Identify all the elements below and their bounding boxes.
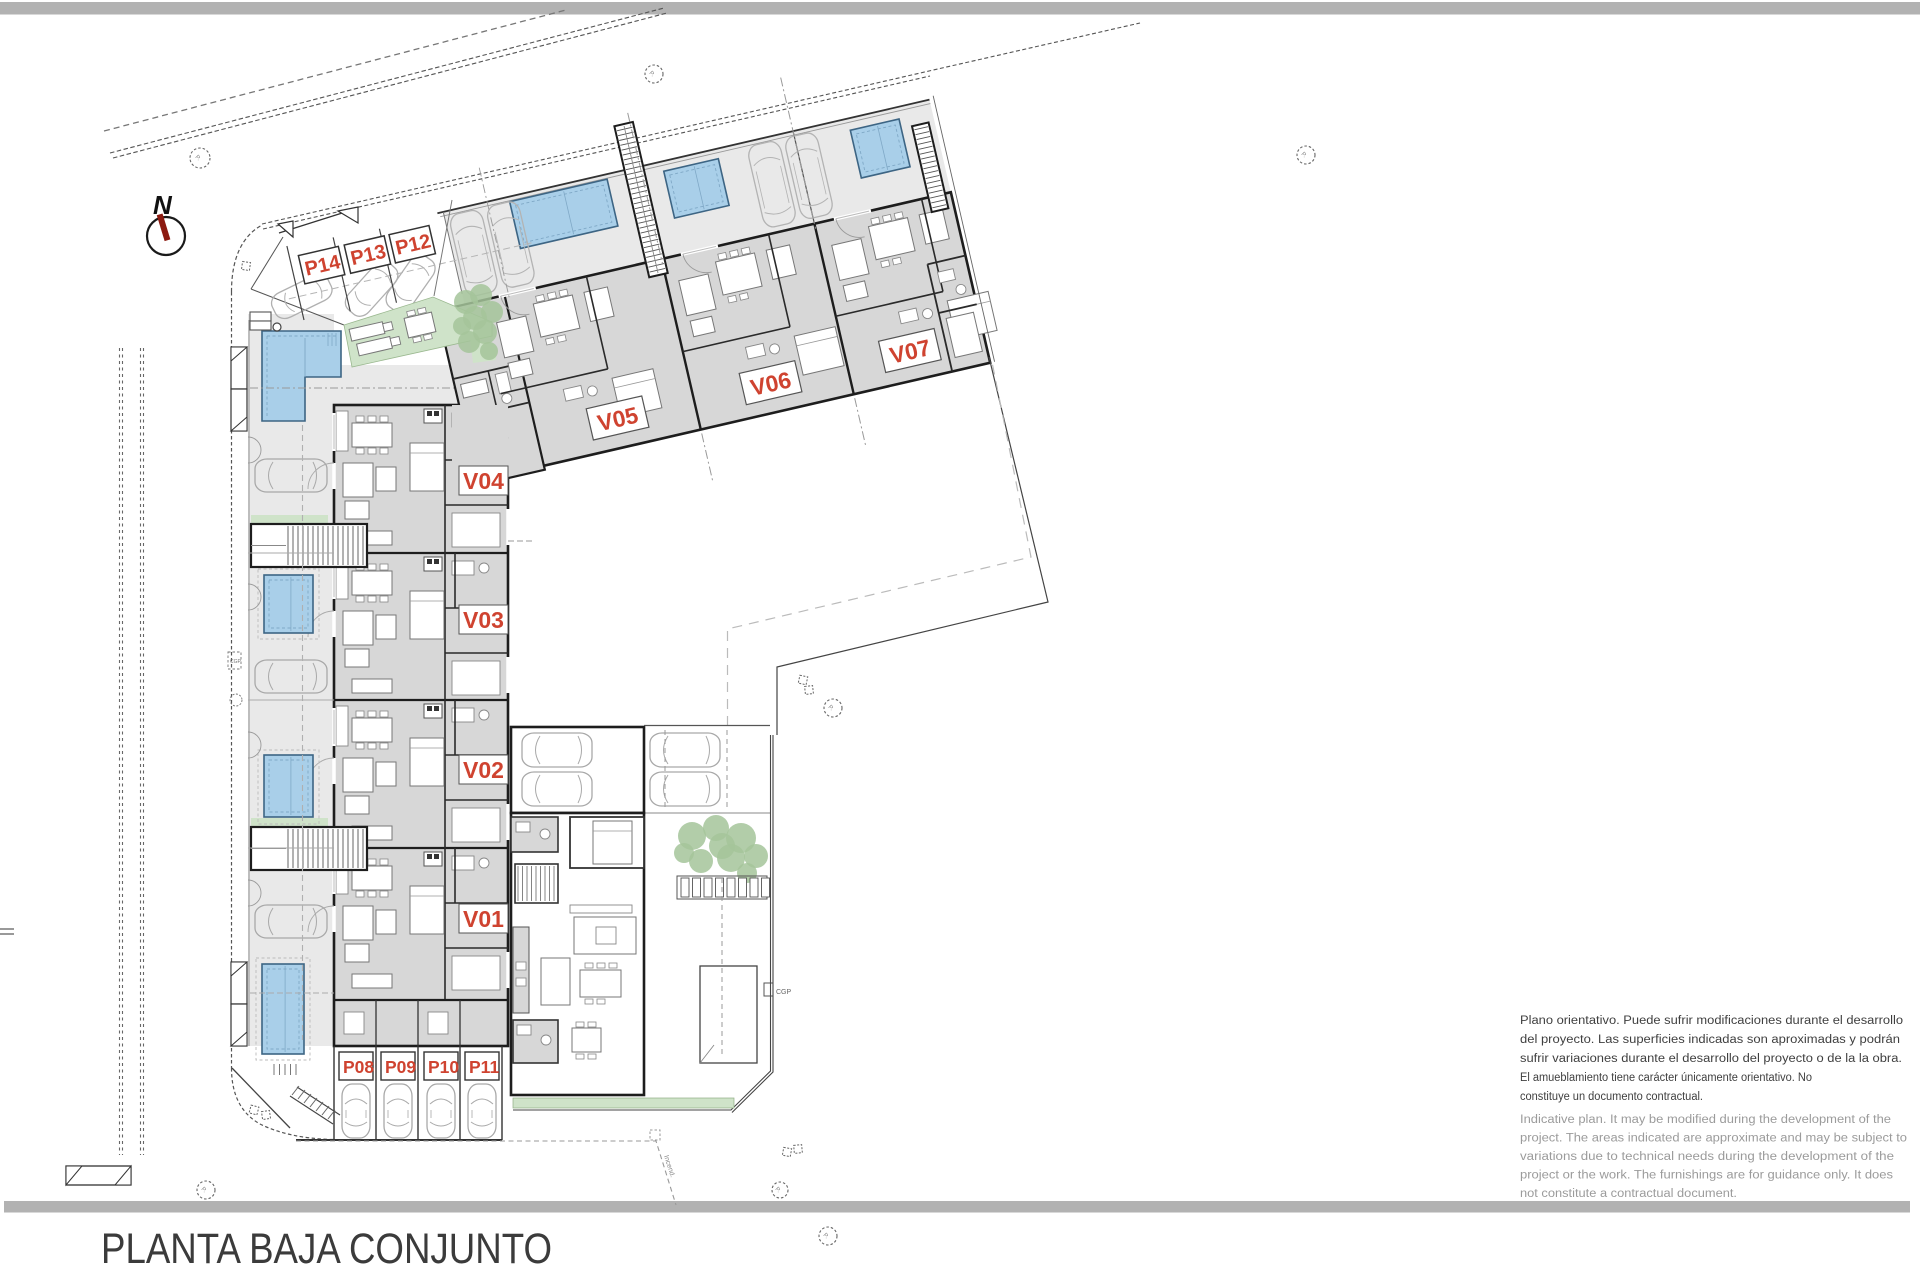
svg-text:P10: P10	[428, 1057, 459, 1077]
svg-text:V01: V01	[463, 906, 504, 932]
svg-text:project or the work. The furni: project or the work. The furnishings are…	[1520, 1170, 1893, 1182]
svg-text:El amueblamiento tiene carácte: El amueblamiento tiene carácter únicamen…	[1520, 1072, 1812, 1084]
svg-text:P08: P08	[343, 1057, 374, 1077]
svg-text:CGP: CGP	[776, 989, 792, 996]
svg-text:N: N	[153, 190, 173, 220]
svg-text:constituye un documento contra: constituye un documento contractual.	[1520, 1091, 1703, 1103]
svg-text:P11: P11	[469, 1057, 499, 1077]
svg-text:Indicative plan. It may be mod: Indicative plan. It may be modified duri…	[1520, 1114, 1891, 1126]
svg-text:project. The areas indicated a: project. The areas indicated are approxi…	[1520, 1133, 1907, 1145]
svg-text:V03: V03	[463, 607, 504, 633]
svg-text:CGP: CGP	[230, 659, 242, 665]
svg-text:not constitute a contractual d: not constitute a contractual document.	[1520, 1188, 1737, 1200]
svg-text:Plano orientativo. Puede sufri: Plano orientativo. Puede sufrir modifica…	[1520, 1015, 1903, 1027]
svg-text:del proyecto. Las superficies: del proyecto. Las superficies indicadas …	[1520, 1034, 1900, 1046]
svg-text:variations due to technical ne: variations due to technical needs during…	[1520, 1151, 1894, 1163]
svg-text:V02: V02	[463, 757, 504, 783]
svg-text:PLANTA BAJA CONJUNTO: PLANTA BAJA CONJUNTO	[101, 1226, 552, 1273]
svg-text:sufrir variaciones durante el: sufrir variaciones durante el desarrollo…	[1520, 1053, 1902, 1065]
svg-text:V04: V04	[463, 468, 504, 494]
svg-text:P09: P09	[385, 1057, 416, 1077]
